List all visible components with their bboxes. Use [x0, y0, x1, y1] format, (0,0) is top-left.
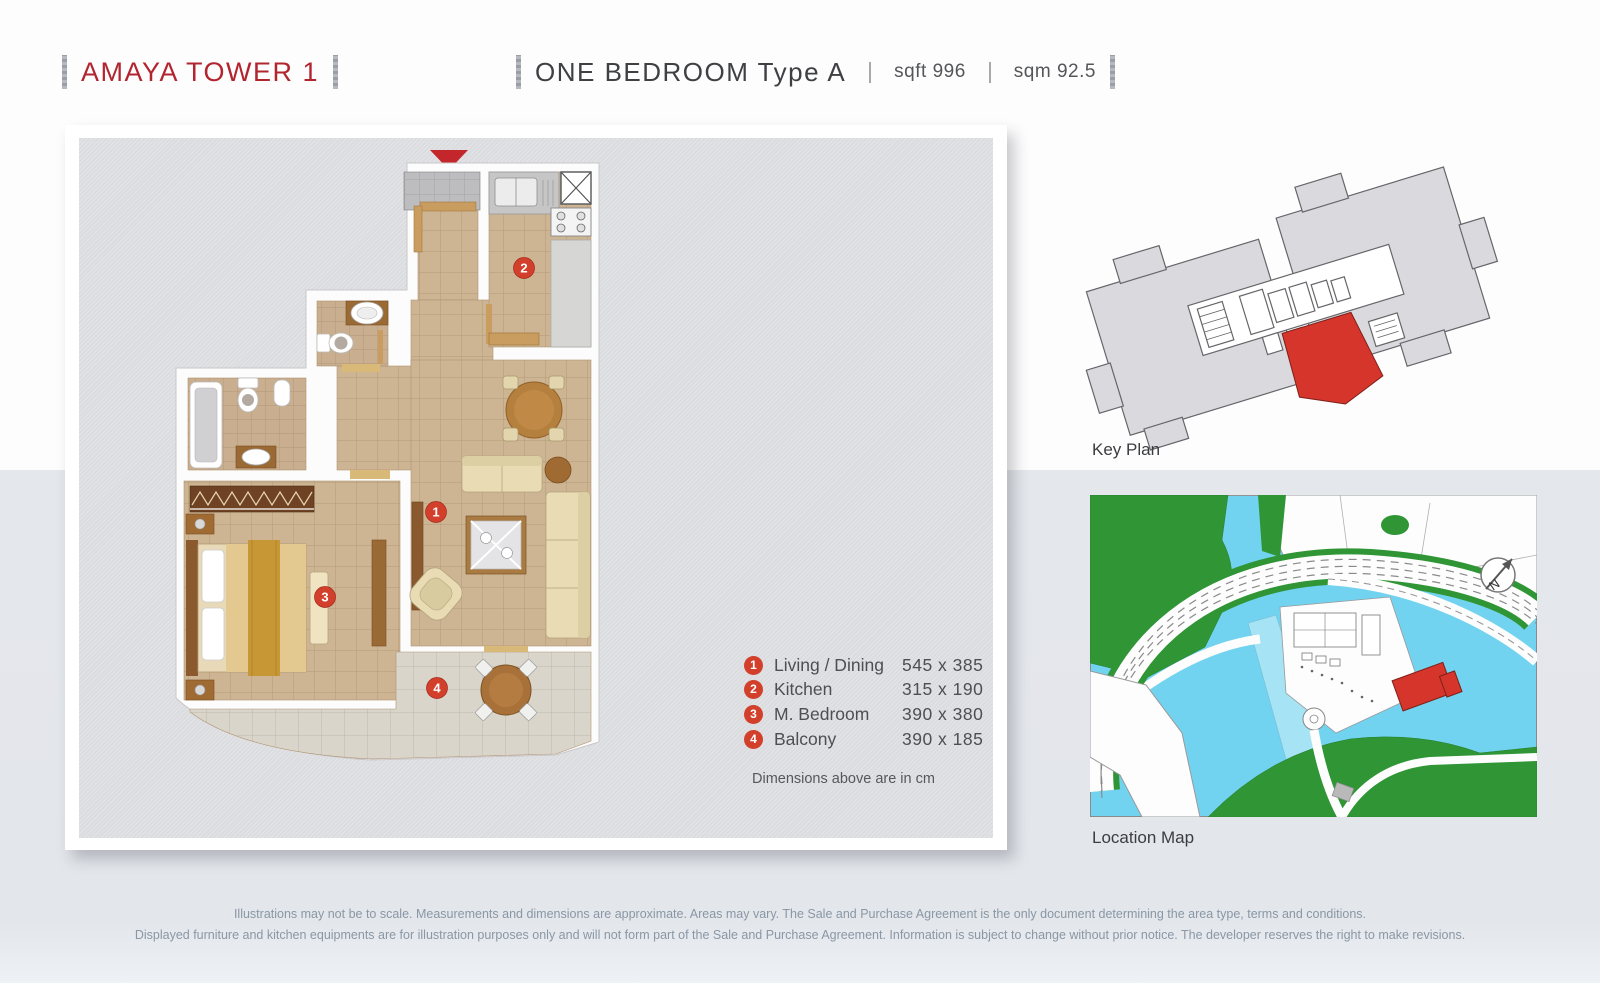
legend-room-dims: 545 x 385	[902, 655, 994, 676]
title-divider-bar	[333, 55, 338, 89]
bed-headboard	[186, 540, 198, 676]
legend-room-name: Kitchen	[774, 679, 902, 700]
svg-text:3: 3	[321, 590, 328, 605]
tower-header: AMAYA TOWER 1	[62, 55, 338, 89]
legend-marker-3: 3	[744, 705, 763, 724]
title-divider-bar	[1110, 55, 1115, 89]
legend-row: 4 Balcony 390 x 185	[744, 727, 994, 752]
legend-room-name: Balcony	[774, 729, 902, 750]
unit-type-title: ONE BEDROOM Type A	[535, 57, 846, 88]
title-divider-bar	[516, 55, 521, 89]
disclaimer-line-2: Displayed furniture and kitchen equipmen…	[0, 925, 1600, 946]
location-map: N	[1090, 495, 1537, 817]
unit-header: ONE BEDROOM Type A sqft 996 sqm 92.5	[516, 55, 1115, 89]
legend-marker-1: 1	[744, 656, 763, 675]
bathroom1-threshold	[342, 364, 380, 372]
dresser	[372, 540, 386, 646]
legend-room-name: M. Bedroom	[774, 704, 902, 725]
legend-row: 3 M. Bedroom 390 x 380	[744, 702, 994, 727]
room-marker-2: 2	[514, 258, 535, 279]
green-patch	[1381, 515, 1409, 535]
balcony-threshold	[484, 646, 528, 652]
legend-row: 2 Kitchen 315 x 190	[744, 678, 994, 703]
room-marker-3: 3	[315, 587, 336, 608]
location-map-label: Location Map	[1092, 828, 1194, 848]
title-divider-bar	[62, 55, 67, 89]
legend-room-name: Living / Dining	[774, 655, 902, 676]
entry-door	[420, 202, 476, 211]
room-marker-4: 4	[427, 678, 448, 699]
balcony-furniture	[475, 659, 537, 721]
dimensions-note: Dimensions above are in cm	[752, 771, 994, 787]
svg-text:1: 1	[432, 505, 439, 520]
legend-marker-2: 2	[744, 680, 763, 699]
disclaimer-line-1: Illustrations may not be to scale. Measu…	[0, 904, 1600, 925]
svg-text:4: 4	[433, 681, 441, 696]
legend-room-dims: 390 x 185	[902, 729, 994, 750]
tower-title: AMAYA TOWER 1	[81, 57, 319, 88]
pipe-divider	[989, 62, 991, 83]
key-plan	[1075, 148, 1505, 468]
legend-marker-4: 4	[744, 730, 763, 749]
area-sqm: sqm 92.5	[1014, 61, 1096, 83]
key-plan-label: Key Plan	[1092, 440, 1160, 460]
svg-text:2: 2	[520, 261, 527, 276]
area-sqft: sqft 996	[894, 61, 966, 83]
stove-icon	[551, 208, 591, 236]
pipe-divider	[869, 62, 871, 83]
room-legend: 1 Living / Dining 545 x 385 2 Kitchen 31…	[744, 653, 994, 787]
bathroom1-door	[378, 330, 383, 364]
bedroom-threshold	[350, 470, 390, 479]
legend-row: 1 Living / Dining 545 x 385	[744, 653, 994, 678]
room-marker-1: 1	[426, 502, 447, 523]
closet-door	[414, 206, 422, 252]
brochure-page: { "header": { "tower": "AMAYA TOWER 1", …	[0, 0, 1600, 983]
compass-icon: N	[1481, 558, 1515, 593]
side-table	[545, 457, 571, 483]
disclaimer: Illustrations may not be to scale. Measu…	[0, 904, 1600, 946]
legend-room-dims: 315 x 190	[902, 679, 994, 700]
legend-room-dims: 390 x 380	[902, 704, 994, 725]
